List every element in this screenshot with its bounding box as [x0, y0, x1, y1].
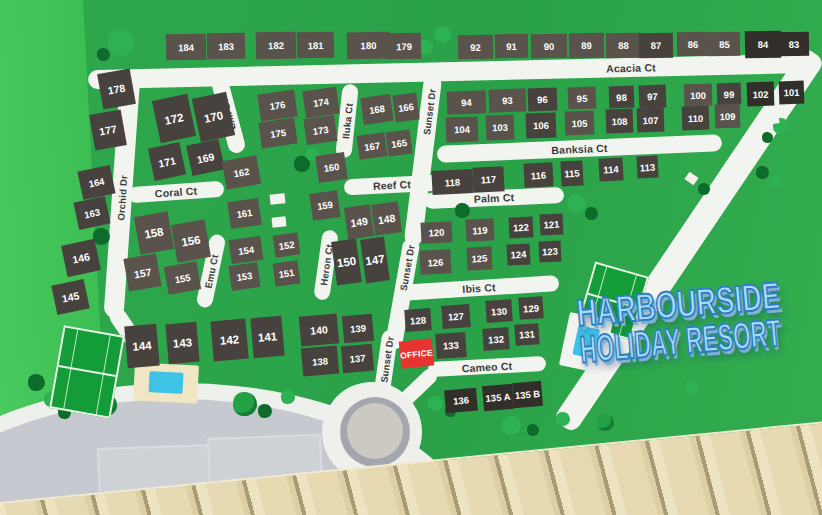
lot-85: 85 — [709, 32, 740, 57]
dark-bush-icon — [28, 374, 45, 391]
bush-icon — [108, 30, 134, 56]
lot-149: 149 — [344, 204, 374, 239]
dark-bush-icon — [527, 424, 539, 436]
lot-181: 181 — [297, 32, 334, 59]
lot-152: 152 — [273, 232, 301, 257]
road-label-reef: Reef Ct — [373, 178, 412, 192]
lot-103: 103 — [486, 115, 515, 141]
resort-map-sign-photo: Acacia CtBanksia CtPalm CtReef CtCoral C… — [0, 0, 822, 515]
lot-159: 159 — [309, 190, 340, 221]
lot-88: 88 — [606, 33, 641, 59]
lot-184: 184 — [166, 34, 206, 61]
lot-133: 133 — [435, 332, 467, 359]
tree-icon — [597, 414, 614, 431]
lot-135A: 135 A — [482, 384, 514, 412]
road-label-acacia: Acacia Ct — [606, 61, 656, 74]
lot-171: 171 — [148, 142, 186, 181]
lot-93: 93 — [489, 88, 527, 112]
lot-173: 173 — [303, 115, 337, 145]
road-iluka: Iluka Ct — [335, 83, 359, 158]
road-label-ibis: Ibis Ct — [462, 281, 496, 295]
lot-174: 174 — [302, 87, 339, 118]
lot-100: 100 — [684, 84, 713, 107]
lot-166: 166 — [392, 92, 420, 122]
lot-117: 117 — [472, 166, 504, 193]
dark-bush-icon — [455, 203, 470, 218]
lot-150: 150 — [331, 238, 362, 285]
lot-139: 139 — [342, 314, 374, 344]
lot-178: 178 — [97, 68, 136, 109]
lot-136: 136 — [444, 388, 478, 414]
bush-icon — [502, 416, 521, 435]
lot-105: 105 — [565, 111, 595, 136]
road-label-iluka: Iluka Ct — [340, 103, 355, 140]
lot-92: 92 — [458, 35, 493, 60]
bush-icon — [428, 396, 443, 411]
lot-130: 130 — [485, 299, 512, 323]
lot-102: 102 — [747, 82, 775, 107]
lot-131: 131 — [514, 323, 539, 346]
road-label-sunset-upper: Sunset Dr — [421, 88, 438, 136]
bush-icon — [685, 380, 699, 394]
lot-114: 114 — [598, 157, 623, 181]
dark-bush-icon — [97, 48, 110, 61]
amenity-marker-icon — [272, 216, 287, 227]
road-label-banksia: Banksia Ct — [551, 141, 608, 155]
lot-125: 125 — [466, 246, 492, 270]
road-label-emu: Emu Ct — [202, 253, 220, 289]
dark-bush-icon — [698, 183, 710, 195]
amenity-marker-icon — [270, 193, 286, 205]
lot-154: 154 — [228, 236, 263, 264]
lot-183: 183 — [207, 33, 245, 60]
road-banksia: Banksia Ct — [437, 134, 722, 163]
lot-86: 86 — [677, 32, 709, 57]
bush-icon — [281, 390, 295, 404]
bush-icon — [556, 412, 570, 426]
lot-148: 148 — [371, 201, 402, 235]
lot-124: 124 — [506, 243, 530, 265]
office-label: OFFICE — [399, 338, 435, 368]
lot-135B: 135 B — [512, 381, 543, 408]
lot-169: 169 — [186, 139, 225, 176]
lot-147: 147 — [360, 237, 390, 284]
pool-water — [149, 371, 183, 394]
lot-99: 99 — [717, 83, 742, 106]
lot-168: 168 — [360, 94, 393, 125]
lot-144: 144 — [124, 324, 160, 369]
lot-83: 83 — [779, 32, 809, 57]
lot-176: 176 — [257, 90, 297, 122]
lot-126: 126 — [419, 249, 451, 275]
lot-95: 95 — [568, 87, 597, 110]
tree-icon — [233, 392, 257, 416]
lot-122: 122 — [508, 216, 533, 238]
road-label-sunset-lower: Sunset Dr — [378, 336, 395, 384]
road-label-cameo: Cameo Ct — [461, 359, 512, 374]
lot-116: 116 — [523, 162, 553, 187]
bush-icon — [567, 194, 586, 213]
lot-164: 164 — [77, 165, 115, 200]
lot-172: 172 — [152, 94, 196, 144]
lot-180: 180 — [347, 32, 390, 60]
lot-142: 142 — [210, 319, 248, 362]
lot-179: 179 — [387, 33, 421, 60]
lot-163: 163 — [73, 196, 110, 230]
road-label-orchid: Orchid Dr — [115, 175, 129, 221]
lot-182: 182 — [256, 32, 296, 60]
lot-87: 87 — [639, 33, 673, 59]
road-cameo: Cameo Ct — [428, 356, 547, 377]
lot-94: 94 — [447, 90, 487, 114]
lot-113: 113 — [636, 155, 658, 178]
lot-146: 146 — [61, 239, 101, 277]
lot-84: 84 — [745, 31, 781, 59]
lot-156: 156 — [171, 219, 211, 262]
dark-bush-icon — [93, 228, 110, 245]
lot-175: 175 — [258, 118, 297, 149]
lot-177: 177 — [89, 109, 127, 150]
lot-123: 123 — [538, 240, 561, 262]
dark-bush-icon — [762, 132, 773, 143]
lot-108: 108 — [606, 109, 634, 134]
lot-121: 121 — [539, 213, 563, 235]
road-label-coral: Coral Ct — [154, 185, 197, 200]
lot-115: 115 — [560, 160, 583, 186]
road-coral: Coral Ct — [128, 181, 225, 204]
lot-162: 162 — [222, 155, 262, 190]
lot-137: 137 — [341, 344, 374, 374]
lot-143: 143 — [165, 322, 199, 365]
lot-161: 161 — [227, 198, 261, 229]
lot-101: 101 — [779, 81, 805, 105]
bush-icon — [770, 176, 782, 188]
lot-98: 98 — [609, 86, 635, 109]
lot-145: 145 — [51, 279, 90, 315]
lot-151: 151 — [273, 260, 301, 286]
dark-bush-icon — [756, 166, 769, 179]
lot-140: 140 — [299, 313, 339, 346]
dark-bush-icon — [258, 404, 272, 418]
amenity-marker-icon — [765, 113, 779, 125]
lot-109: 109 — [715, 104, 741, 129]
lot-104: 104 — [446, 116, 479, 142]
amenity-marker-icon — [684, 172, 698, 186]
lot-157: 157 — [123, 253, 161, 291]
lot-155: 155 — [164, 261, 201, 294]
lot-120: 120 — [420, 221, 452, 244]
lot-158: 158 — [134, 211, 174, 254]
lot-90: 90 — [531, 34, 567, 59]
lot-97: 97 — [639, 85, 667, 109]
lot-118: 118 — [431, 169, 473, 195]
lot-96: 96 — [528, 88, 558, 112]
lot-91: 91 — [495, 34, 528, 59]
lot-153: 153 — [228, 262, 260, 291]
lot-129: 129 — [518, 296, 543, 320]
lot-106: 106 — [526, 112, 557, 138]
swimming-pool-icon — [133, 362, 199, 403]
dark-bush-icon — [585, 207, 598, 220]
lot-107: 107 — [637, 108, 665, 133]
lot-165: 165 — [385, 129, 412, 156]
bush-icon — [434, 26, 451, 43]
lot-110: 110 — [682, 106, 710, 131]
lot-89: 89 — [569, 33, 604, 59]
lot-167: 167 — [356, 132, 387, 160]
lot-127: 127 — [441, 304, 471, 329]
lot-160: 160 — [315, 152, 347, 183]
lot-138: 138 — [301, 345, 339, 376]
lot-119: 119 — [465, 218, 494, 241]
lot-128: 128 — [404, 308, 431, 332]
roundabout-island — [347, 403, 403, 459]
road-label-palm: Palm Ct — [474, 191, 515, 205]
lot-132: 132 — [482, 327, 509, 351]
lot-141: 141 — [250, 316, 284, 359]
